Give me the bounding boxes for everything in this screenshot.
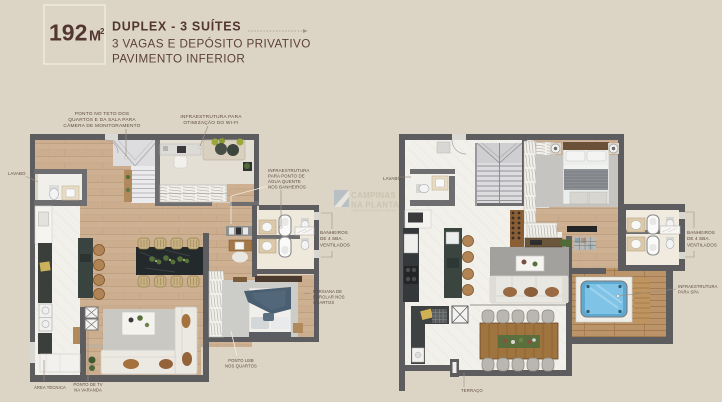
svg-text:PONTO NO TETO DOS: PONTO NO TETO DOS [75, 111, 130, 117]
svg-text:ÁREA TÉCNICA: ÁREA TÉCNICA [34, 385, 66, 390]
svg-text:NOS QUARTOS: NOS QUARTOS [225, 364, 257, 369]
svg-text:PONTO DE TV: PONTO DE TV [73, 382, 102, 387]
svg-text:CAMPINASNAPLANTA.COM.BR: CAMPINASNAPLANTA.COM.BR [351, 209, 396, 213]
svg-text:QUARTOS: QUARTOS [313, 300, 334, 305]
svg-text:3 VAGAS E DEPÓSITO PRIVATIVO: 3 VAGAS E DEPÓSITO PRIVATIVO [112, 38, 311, 51]
svg-text:CAMPINAS: CAMPINAS [351, 191, 396, 200]
svg-text:ÁGUA QUENTE: ÁGUA QUENTE [268, 179, 301, 184]
svg-text:DE 4 SBA.: DE 4 SBA. [687, 236, 710, 241]
svg-text:QUARTOS E DA SALA PARA: QUARTOS E DA SALA PARA [68, 117, 136, 123]
svg-text:PERSIANA DE: PERSIANA DE [313, 289, 342, 294]
svg-text:2: 2 [100, 27, 105, 36]
svg-text:PONTO USB: PONTO USB [228, 358, 254, 363]
svg-text:INFRAESTRUTURA PARA: INFRAESTRUTURA PARA [180, 114, 242, 120]
svg-text:LAVABO: LAVABO [8, 171, 26, 176]
svg-text:VENTILADOS: VENTILADOS [320, 243, 350, 248]
svg-text:BANHEIROS: BANHEIROS [320, 230, 348, 235]
svg-text:BANHEIROS: BANHEIROS [687, 230, 715, 235]
svg-text:TERRAÇO: TERRAÇO [461, 388, 483, 393]
svg-text:DUPLEX - 3 SUÍTES: DUPLEX - 3 SUÍTES [112, 19, 241, 34]
svg-text:INFRAESTRUTURA: INFRAESTRUTURA [678, 284, 718, 289]
svg-text:PARA SPA: PARA SPA [678, 290, 699, 295]
svg-text:INFRAESTRUTURA: INFRAESTRUTURA [268, 168, 309, 173]
svg-text:PAVIMENTO INFERIOR: PAVIMENTO INFERIOR [112, 53, 245, 66]
svg-text:DE 4 SBA.: DE 4 SBA. [320, 236, 343, 241]
svg-text:ENROLAR NOS: ENROLAR NOS [313, 295, 345, 300]
svg-text:PARA PONTO DE: PARA PONTO DE [268, 174, 305, 179]
svg-text:NA VARANDA: NA VARANDA [74, 388, 102, 393]
svg-text:OTIMIZAÇÃO DO WI-FI: OTIMIZAÇÃO DO WI-FI [183, 119, 238, 126]
svg-text:NA PLANTA: NA PLANTA [351, 201, 399, 210]
svg-text:NOS BANHEIROS: NOS BANHEIROS [268, 185, 306, 190]
svg-text:CÂMERA DE MONITORAMENTO: CÂMERA DE MONITORAMENTO [63, 122, 140, 129]
svg-text:192: 192 [49, 20, 87, 46]
svg-text:VENTILADOS: VENTILADOS [687, 243, 717, 248]
